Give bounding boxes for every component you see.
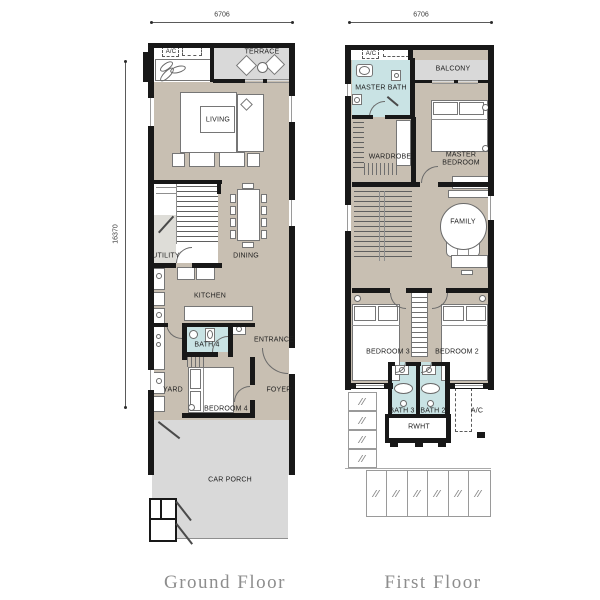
room-label-rwht: RWHT (408, 424, 430, 431)
wall (352, 182, 420, 187)
room-label-bath2: BATH 2 (420, 408, 445, 415)
appliance (153, 396, 165, 412)
sliding-door (432, 83, 478, 84)
room-label-ac-bottom: A/C (471, 408, 483, 415)
bed-linen-line (431, 119, 488, 120)
pillow (378, 306, 398, 321)
wall (438, 182, 488, 187)
pillow (466, 306, 486, 321)
dining-chair (261, 206, 267, 215)
window (345, 205, 351, 231)
bathtub (421, 383, 440, 394)
dining-chair (230, 218, 236, 227)
room-label-bedroom3: BEDROOM 3 (366, 349, 410, 356)
dining-table (237, 189, 260, 241)
wall (148, 263, 176, 268)
sink-basin (156, 378, 162, 384)
pillow (190, 369, 201, 389)
wall (352, 288, 390, 293)
room-label-car-porch: CAR PORCH (208, 477, 252, 484)
wall (213, 79, 245, 83)
roof-panel-line (468, 470, 469, 517)
wall (192, 263, 222, 268)
ceiling-fan-icon (188, 404, 195, 411)
wall (410, 58, 415, 117)
appliance (153, 292, 165, 306)
room-label-utility: UTILITY (152, 253, 179, 260)
wall (352, 115, 373, 119)
room-label-bath3: BATH 3 (389, 408, 414, 415)
window (148, 98, 154, 126)
room-label-master-bedroom: MASTER BEDROOM (437, 152, 485, 169)
window-glass (150, 98, 151, 126)
tv-console (451, 255, 488, 268)
sliding-door (245, 82, 290, 83)
ac-label: A/C (166, 49, 177, 55)
stool (461, 270, 473, 275)
kitchen-counter (184, 306, 253, 321)
wall-stub (415, 443, 423, 447)
console-table (448, 190, 489, 198)
sliding-door (245, 79, 290, 80)
ac-unit-box (455, 388, 472, 432)
stair-rail (384, 191, 385, 261)
gate-divider (149, 518, 177, 520)
wall (388, 414, 450, 418)
wall (478, 80, 488, 83)
stair-landing (156, 187, 176, 188)
window-glass (291, 200, 292, 226)
window-glass (291, 96, 292, 122)
room-label-kitchen: KITCHEN (194, 293, 226, 300)
window-glass (490, 196, 491, 220)
ceiling-fan-icon (354, 295, 361, 302)
window (289, 96, 295, 122)
dimension-ground-width: 6706 (214, 12, 230, 19)
window (148, 370, 154, 390)
room-label-master-bath: MASTER BATH (355, 85, 406, 92)
pillow (443, 306, 464, 321)
wall-stub (143, 52, 148, 82)
dimension-end-dot (124, 60, 127, 63)
wall (148, 323, 168, 327)
hatch-mark (432, 489, 442, 498)
hatch-mark (357, 435, 367, 444)
wall-stub (228, 352, 233, 357)
wall-post (263, 79, 267, 83)
roof-panel-line (386, 470, 387, 517)
dining-chair (261, 194, 267, 203)
dimension-line-ground-width (152, 22, 293, 23)
gate-post-structure (149, 498, 177, 542)
wall (182, 352, 218, 357)
hatch-mark (357, 416, 367, 425)
toilet (427, 400, 434, 407)
dimension-end-dot (124, 406, 127, 409)
wall (385, 115, 411, 119)
floor-plan-canvas: 6706 6706 16370 A/C (0, 0, 600, 600)
wall (148, 43, 295, 48)
wall (148, 180, 222, 184)
dining-chair (230, 230, 236, 239)
wall (406, 288, 432, 293)
ceiling-fan-icon (479, 295, 486, 302)
toilet-bowl (359, 66, 370, 75)
basin (354, 97, 360, 103)
room-label-dining: DINING (233, 253, 259, 260)
wall (345, 45, 494, 50)
room-label-bath4: BATH 4 (194, 342, 219, 349)
sink-basin (156, 273, 162, 279)
window (345, 84, 351, 96)
roof-edge-line (345, 468, 491, 469)
roof-panel-line (427, 470, 428, 517)
room-label-balcony: BALCONY (436, 66, 471, 73)
dining-chair (242, 242, 254, 248)
stair-rail (379, 191, 380, 261)
stair-rail (176, 184, 177, 244)
room-label-bedroom4: BEDROOM 4 (204, 406, 248, 413)
window-glass (347, 84, 348, 96)
wall-stub (477, 432, 485, 438)
wall (416, 362, 420, 414)
wall (182, 413, 255, 418)
round-rug (440, 203, 487, 250)
window-glass (347, 205, 348, 231)
room-label-family: FAMILY (450, 219, 476, 226)
caption-ground-floor: Ground Floor (164, 572, 286, 594)
side-table (172, 153, 185, 167)
armchair (189, 152, 215, 167)
toilet (400, 400, 407, 407)
dimension-end-dot (490, 21, 493, 24)
wall (446, 288, 488, 293)
dining-chair (242, 183, 254, 189)
burner (156, 312, 162, 318)
window (488, 196, 494, 220)
room-label-wardrobe: WARDROBE (369, 154, 412, 161)
side-table (247, 153, 260, 167)
dimension-end-dot (348, 21, 351, 24)
wall (412, 80, 432, 83)
pillow (354, 306, 376, 321)
gate-divider (160, 498, 162, 518)
ac-label: A/C (366, 51, 377, 57)
dimension-height: 16370 (113, 224, 120, 243)
yard-counter (153, 326, 165, 370)
room-label-bedroom2: BEDROOM 2 (435, 349, 479, 356)
bathtub (394, 383, 413, 394)
wardrobe-rail-hatch (353, 122, 364, 172)
hatch-mark (473, 489, 483, 498)
stair-landing (156, 193, 176, 194)
room-label-living: LIVING (206, 117, 230, 124)
window (289, 200, 295, 226)
dining-chair (230, 194, 236, 203)
hatch-mark (357, 454, 367, 463)
wall (432, 362, 446, 366)
wash-basin (189, 330, 198, 339)
kitchen-sink-unit (153, 268, 165, 290)
hatch-mark (371, 489, 381, 498)
roof-panel-line (407, 470, 408, 517)
pillow (433, 102, 458, 115)
wall (411, 117, 416, 182)
kitchen-cabinet (177, 267, 195, 280)
wall-post (454, 80, 458, 83)
wall (250, 357, 255, 385)
armchair (219, 152, 245, 167)
caption-first-floor: First Floor (384, 572, 481, 594)
dining-chair (261, 230, 267, 239)
room-label-yard: YARD (163, 387, 183, 394)
toilet-bowl (207, 330, 213, 339)
wall (210, 45, 214, 82)
shower-head (394, 73, 399, 78)
window-glass (356, 385, 384, 386)
roof-panel-line (448, 470, 449, 517)
bed-linen-line (352, 325, 400, 326)
wardrobe-rail-hatch (364, 163, 399, 175)
hatch-mark (357, 397, 367, 406)
car-porch-floor (153, 420, 290, 475)
hatch-mark (391, 489, 401, 498)
window-glass (150, 370, 151, 390)
linen-closet (411, 291, 428, 357)
room-label-foyer: FOYER (266, 387, 291, 394)
hatch-mark (412, 489, 422, 498)
terrace-table (257, 62, 268, 73)
dining-chair (230, 206, 236, 215)
burner (156, 334, 161, 339)
dimension-line-first-width (350, 22, 492, 23)
room-label-entrance: ENTRANCE (254, 337, 294, 344)
dimension-end-dot (291, 21, 294, 24)
wall (182, 323, 255, 327)
kitchen-cabinet (196, 267, 215, 280)
window-glass (455, 385, 483, 386)
dimension-first-width: 6706 (413, 12, 429, 19)
burner (156, 342, 161, 347)
wall-stub (438, 443, 446, 447)
hatch-mark (453, 489, 463, 498)
dimension-end-dot (150, 21, 153, 24)
bed-linen-line (441, 325, 488, 326)
room-label-terrace: TERRACE (245, 49, 280, 56)
wall-stub (390, 443, 398, 447)
stair-treads (354, 191, 412, 261)
entrance-door-opening (289, 348, 295, 374)
dimension-line-height (125, 62, 126, 407)
dining-chair (261, 218, 267, 227)
wall (445, 362, 450, 418)
wall-stub (217, 180, 221, 194)
stair-treads (176, 186, 218, 242)
pillow (459, 102, 484, 115)
